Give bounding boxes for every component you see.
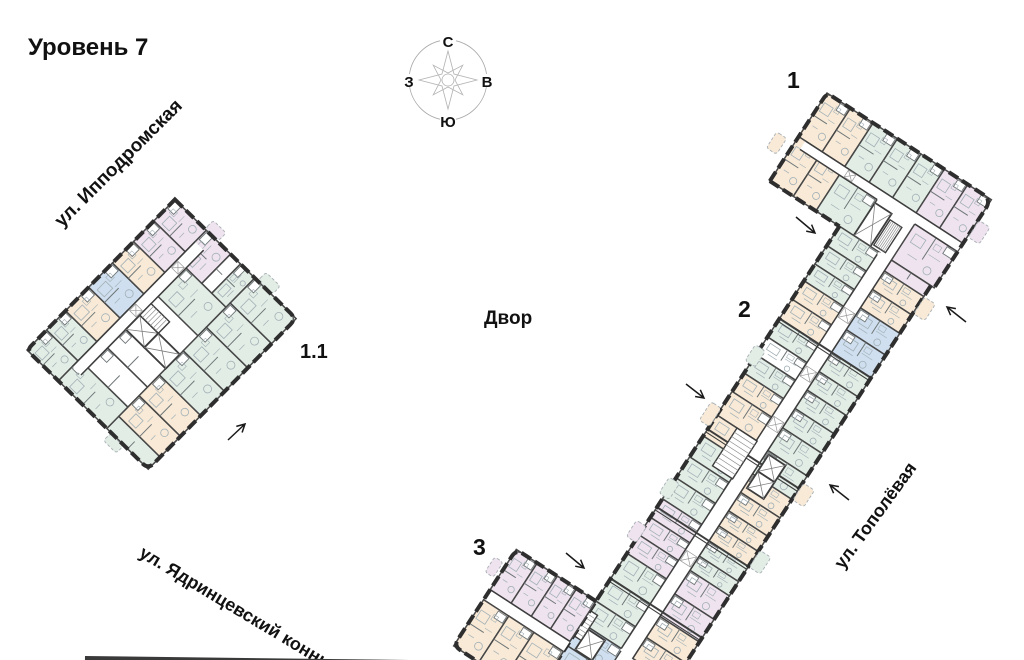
svg-text:2: 2 <box>738 296 751 322</box>
svg-text:В: В <box>482 74 493 91</box>
svg-text:З: З <box>404 74 413 91</box>
svg-text:1.1: 1.1 <box>300 341 328 363</box>
svg-text:Двор: Двор <box>484 308 532 329</box>
svg-text:1: 1 <box>787 67 800 93</box>
svg-text:Ю: Ю <box>440 114 455 131</box>
svg-text:С: С <box>443 34 454 51</box>
svg-text:3: 3 <box>473 534 486 560</box>
svg-text:Уровень 7: Уровень 7 <box>28 34 148 61</box>
